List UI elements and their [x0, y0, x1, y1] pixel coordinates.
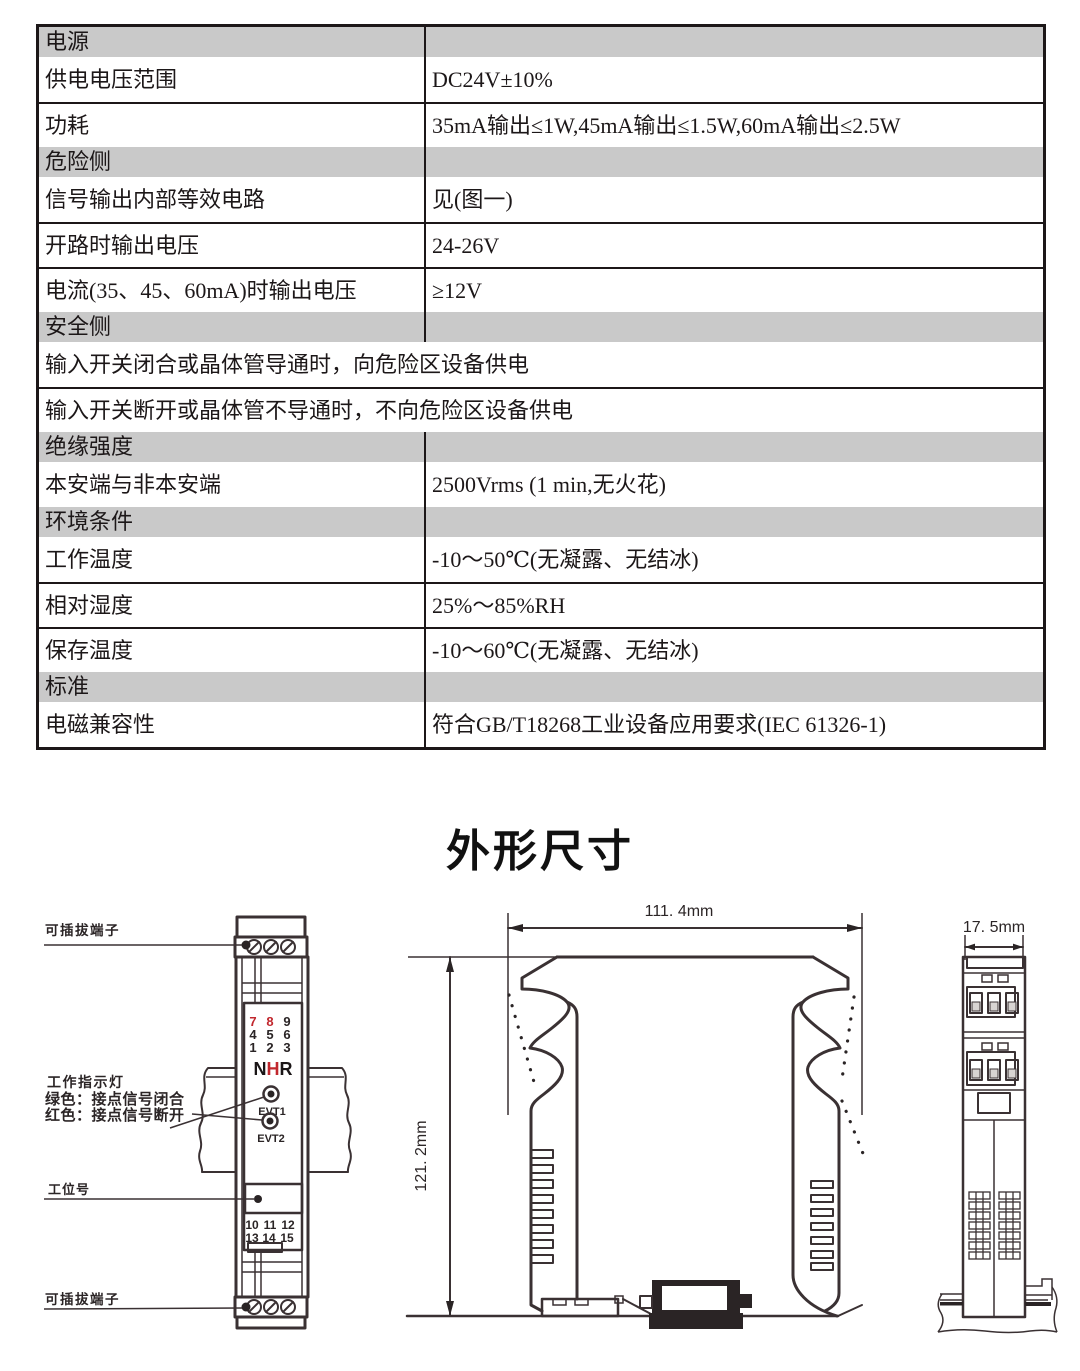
table-section-header: 危险侧: [39, 147, 1043, 177]
label-top-terminal: 可插拔端子: [45, 922, 120, 938]
row-label: 供电电压范围: [39, 57, 426, 102]
table-row: 保存温度-10～60℃(无凝露、无结冰): [39, 627, 1043, 672]
row-label: 电源: [39, 27, 426, 57]
end-view-module: [963, 957, 1025, 1317]
table-section-header: 绝缘强度: [39, 432, 1043, 462]
table-section-header: 电源: [39, 27, 1043, 57]
terminal-number: 12: [281, 1218, 295, 1232]
end-width-dimension: 17. 5mm: [963, 919, 1025, 960]
callouts: 可插拔端子 工作指示灯 绿色：接点信号闭合 红色：接点信号断开 工位号 可插拔端…: [44, 922, 264, 1309]
label-bottom-terminal: 可插拔端子: [45, 1291, 120, 1307]
leader-dot: [254, 1195, 262, 1203]
terminal-number-grid: 7 8 9 4 5 6 1 2 3: [249, 1014, 290, 1055]
leader-dot: [242, 941, 251, 950]
row-value: 35mA输出≤1W,45mA输出≤1.5W,60mA输出≤2.5W: [426, 104, 1043, 147]
break-dots: [842, 1101, 864, 1156]
row-label: 开路时输出电压: [39, 224, 426, 267]
table-row: 相对湿度25%～85%RH: [39, 582, 1043, 627]
row-label: 安全侧: [39, 312, 426, 342]
row-label: 信号输出内部等效电路: [39, 177, 426, 222]
row-value: 24-26V: [426, 224, 1043, 267]
table-section-header: 标准: [39, 672, 1043, 702]
top-terminal-screws: [242, 940, 296, 954]
side-view-diagram: 111. 4mm 121. 2mm: [395, 893, 885, 1343]
row-label: 环境条件: [39, 507, 426, 537]
terminal-number: 2: [266, 1040, 273, 1055]
terminal-number: 1: [249, 1040, 256, 1055]
table-row: 供电电压范围DC24V±10%: [39, 57, 1043, 102]
label-indicator-red: 红色：接点信号断开: [45, 1106, 185, 1124]
row-label: 保存温度: [39, 629, 426, 672]
row-label: 标准: [39, 672, 426, 702]
end-width-dimension-label: 17. 5mm: [963, 919, 1025, 936]
height-dimension-label: 121. 2mm: [413, 1120, 430, 1191]
page: 电源供电电压范围DC24V±10%功耗35mA输出≤1W,45mA输出≤1.5W…: [0, 0, 1080, 1371]
row-value: 2500Vrms (1 min,无火花): [426, 462, 1043, 507]
row-value: [426, 432, 1043, 462]
label-indicator-title: 工作指示灯: [47, 1074, 125, 1090]
din-rail: [199, 1068, 351, 1172]
row-value: 符合GB/T18268工业设备应用要求(IEC 61326-1): [426, 702, 1043, 747]
row-label: 电流(35、45、60mA)时输出电压: [39, 269, 426, 312]
row-label: 绝缘强度: [39, 432, 426, 462]
terminal-number: 11: [264, 1218, 277, 1232]
row-value: -10～50℃(无凝露、无结冰): [426, 537, 1043, 582]
row-value: 25%～85%RH: [426, 584, 1043, 627]
row-label: 功耗: [39, 104, 426, 147]
status-led-evt2: EVT2: [257, 1114, 285, 1146]
spec-table: 电源供电电压范围DC24V±10%功耗35mA输出≤1W,45mA输出≤1.5W…: [36, 24, 1046, 750]
module-front: 7 8 9 4 5 6 1 2 3 NHR EVT1 EVT2: [235, 917, 308, 1328]
table-row: 工作温度-10～50℃(无凝露、无结冰): [39, 537, 1043, 582]
din-rail-break: [938, 1279, 1057, 1333]
front-view-diagram: 7 8 9 4 5 6 1 2 3 NHR EVT1 EVT2: [40, 905, 360, 1340]
table-row: 输入开关断开或晶体管不导通时，不向危险区设备供电: [39, 387, 1043, 432]
width-dimension: 111. 4mm: [508, 903, 862, 1115]
row-value: DC24V±10%: [426, 57, 1043, 102]
row-value: [426, 672, 1043, 702]
row-label: 本安端与非本安端: [39, 462, 426, 507]
label-indicator-green: 绿色：接点信号闭合: [45, 1090, 185, 1108]
row-value: 见(图一): [426, 177, 1043, 222]
led1-label: EVT1: [258, 1106, 286, 1118]
section-title: 外形尺寸: [0, 815, 1080, 879]
nhr-logo: NHR: [254, 1059, 293, 1079]
table-row: 电磁兼容性符合GB/T18268工业设备应用要求(IEC 61326-1): [39, 702, 1043, 747]
table-row: 电流(35、45、60mA)时输出电压≥12V: [39, 267, 1043, 312]
din-clip: [652, 1280, 740, 1317]
row-value: ≥12V: [426, 269, 1043, 312]
row-value: [426, 312, 1043, 342]
end-view-diagram: 17. 5mm: [930, 905, 1080, 1355]
row-label: 输入开关闭合或晶体管导通时，向危险区设备供电: [39, 342, 1043, 387]
row-label: 危险侧: [39, 147, 426, 177]
row-label: 相对湿度: [39, 584, 426, 627]
bottom-number-grid: 10 11 12 13 14 15: [245, 1218, 295, 1245]
led2-label: EVT2: [257, 1133, 285, 1145]
table-section-header: 环境条件: [39, 507, 1043, 537]
terminal-number: 10: [245, 1218, 259, 1232]
width-dimension-label: 111. 4mm: [645, 903, 714, 920]
table-row: 开路时输出电压24-26V: [39, 222, 1043, 267]
break-dots: [842, 997, 854, 1079]
row-value: [426, 507, 1043, 537]
table-row: 功耗35mA输出≤1W,45mA输出≤1.5W,60mA输出≤2.5W: [39, 102, 1043, 147]
table-row: 信号输出内部等效电路见(图一): [39, 177, 1043, 222]
table-section-header: 安全侧: [39, 312, 1043, 342]
tag-holder: [978, 1093, 1010, 1113]
table-row: 本安端与非本安端2500Vrms (1 min,无火花): [39, 462, 1043, 507]
row-value: -10～60℃(无凝露、无结冰): [426, 629, 1043, 672]
rail-and-clip: [407, 1280, 862, 1329]
terminal-number: 3: [283, 1040, 290, 1055]
row-label: 输入开关断开或晶体管不导通时，不向危险区设备供电: [39, 389, 1043, 432]
bottom-terminal-screws: [242, 1300, 296, 1314]
break-dots: [509, 995, 536, 1089]
leader-dot: [242, 1303, 251, 1312]
row-value: [426, 147, 1043, 177]
label-tag: 工位号: [48, 1182, 90, 1197]
table-row: 输入开关闭合或晶体管导通时，向危险区设备供电: [39, 342, 1043, 387]
row-label: 工作温度: [39, 537, 426, 582]
row-label: 电磁兼容性: [39, 702, 426, 747]
row-value: [426, 27, 1043, 57]
